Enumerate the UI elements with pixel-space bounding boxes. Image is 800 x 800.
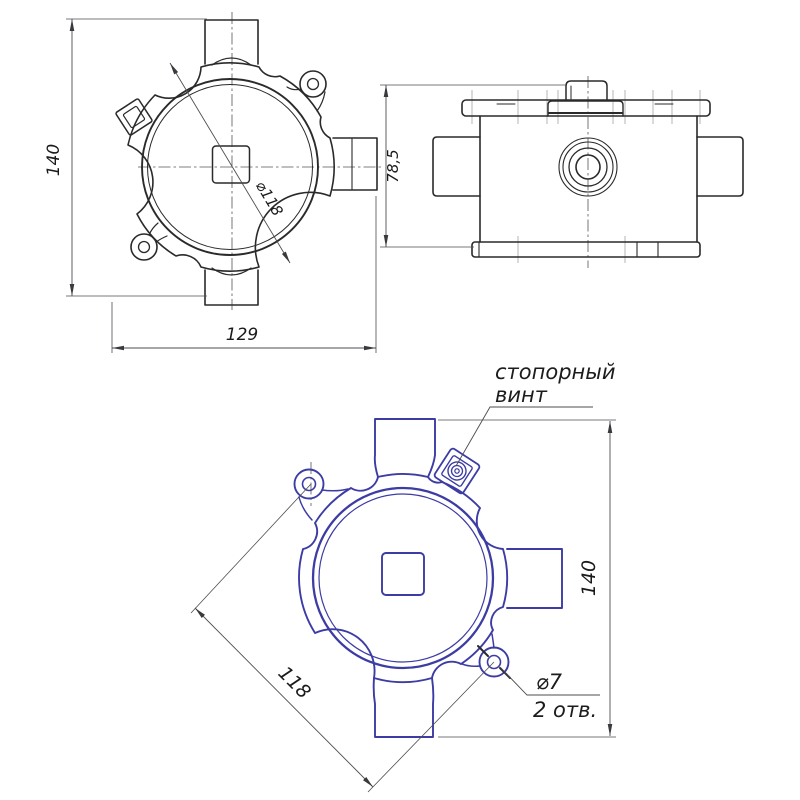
side-bottom-flange-joints	[479, 242, 658, 257]
back-spacing-dim-label: 118	[274, 662, 315, 703]
back-screw-callout-line1: стопорный	[495, 360, 616, 384]
back-hole-diameter-label: ⌀7	[536, 670, 563, 694]
front-ear-top-right-neck	[287, 87, 325, 111]
back-ear-top-left-hole	[303, 478, 316, 491]
back-view: стопорный винт ⌀7 2 отв. 140 118	[191, 360, 616, 792]
front-ear-bottom-left-hole	[139, 242, 150, 253]
back-screw-callout-leader	[456, 407, 593, 466]
side-bottom-flange	[472, 242, 700, 257]
side-height-dim-label: 78,5	[384, 149, 402, 182]
back-screw-pad-outer	[433, 447, 480, 494]
front-diameter-dim-label: ⌀118	[252, 178, 287, 220]
side-top-lug	[566, 81, 607, 100]
front-ear-top-right	[300, 71, 326, 97]
back-ear-top-left	[295, 470, 324, 499]
back-square-hole	[382, 553, 424, 595]
side-right-spout	[697, 137, 743, 196]
side-left-spout	[433, 137, 480, 196]
back-ear-top-left-neck	[299, 489, 348, 520]
back-spacing-dim-line	[195, 608, 373, 787]
front-view: ⌀118 140 129	[44, 12, 382, 353]
back-bottom-spout	[374, 678, 434, 737]
back-spacing-ext-lines	[191, 484, 494, 792]
back-hole-count-label: 2 отв.	[533, 698, 597, 722]
back-screw-pad-inner	[441, 455, 473, 487]
back-screw-head-mid	[449, 463, 464, 478]
back-inner-ring-outer	[313, 488, 493, 668]
back-inner-ring-inner	[319, 494, 487, 662]
front-diameter-dim-line	[170, 63, 290, 263]
back-screw-callout-line2: винт	[495, 383, 548, 407]
back-screw-head-center	[454, 468, 460, 474]
back-right-spout	[507, 549, 562, 608]
front-width-dim-label: 129	[226, 325, 258, 345]
back-locking-screw-pad	[433, 447, 480, 494]
drawing-sheet: ⌀118 140 129	[0, 0, 800, 800]
side-height-ext-lines	[380, 85, 566, 247]
front-right-spout	[333, 138, 377, 190]
back-top-spout	[375, 419, 435, 477]
front-height-dim-label: 140	[44, 144, 64, 176]
back-height-dim-label: 140	[578, 560, 600, 596]
back-outer-profile	[299, 474, 507, 682]
side-view: 78,5	[380, 76, 743, 268]
front-ear-bottom-left	[131, 234, 157, 260]
front-ear-top-right-hole	[308, 79, 319, 90]
engineering-drawing-canvas: ⌀118 140 129	[0, 0, 800, 800]
